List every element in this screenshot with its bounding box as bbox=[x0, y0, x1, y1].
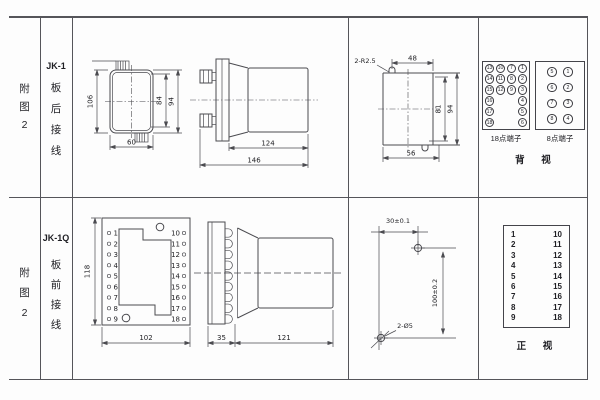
front-panel-outline: 123456789 101112131415161718 bbox=[102, 218, 190, 325]
terminal-circle-16: 16 bbox=[485, 96, 495, 106]
terminal-hole-15 bbox=[182, 285, 185, 288]
terminal-hole-11 bbox=[182, 242, 185, 245]
front-view-label: 正 视 bbox=[492, 338, 577, 352]
terminal-bump-3 bbox=[225, 250, 232, 258]
wiring-char: 接 bbox=[51, 300, 62, 311]
dim-56: 56 bbox=[407, 150, 416, 158]
terminal-num-13: 13 bbox=[171, 262, 180, 270]
terminal-circle-14: 14 bbox=[485, 74, 495, 84]
wiring-label-bottom: 板 前 接 线 bbox=[40, 260, 72, 331]
drawing-sheet: 附 图 2 JK-1 板 后 接 线 附 图 2 JK-1Q 板 前 接 线 bbox=[0, 0, 600, 400]
dim-106: 106 bbox=[87, 94, 95, 108]
terminal-circle-6: 6 bbox=[547, 83, 557, 93]
terminal-hole-13 bbox=[182, 264, 185, 267]
terminal-circle-9: 9 bbox=[507, 85, 517, 95]
front-terminals-right-column: 101112131415161718 bbox=[553, 231, 562, 322]
terminal-circle-4: 4 bbox=[563, 114, 573, 124]
figure-char: 附 bbox=[19, 268, 30, 279]
figure-char: 附 bbox=[19, 84, 30, 95]
terminal-bumps bbox=[225, 229, 232, 323]
model-label-jk1q: JK-1Q bbox=[40, 233, 72, 243]
terminal-number-14: 14 bbox=[553, 273, 562, 281]
label-18pt: 18点端子 bbox=[477, 133, 535, 144]
figure-char: 2 bbox=[22, 120, 28, 131]
dim-118: 118 bbox=[84, 265, 92, 278]
terminal-bump-9 bbox=[225, 315, 232, 323]
terminal-number-10: 10 bbox=[553, 231, 562, 239]
wiring-char: 线 bbox=[51, 146, 62, 157]
terminal-circle-3: 3 bbox=[518, 85, 528, 95]
terminal-hole-12 bbox=[182, 253, 185, 256]
terminal-number-13: 13 bbox=[553, 262, 562, 270]
terminal-circle-5: 5 bbox=[518, 107, 528, 117]
terminal-number-15: 15 bbox=[553, 283, 562, 291]
side-view-q-outline bbox=[194, 222, 342, 324]
terminal-hole-18 bbox=[182, 317, 185, 320]
terminal-bump-8 bbox=[225, 304, 232, 312]
dim-100: 100±0.2 bbox=[431, 279, 439, 307]
side-view-outline bbox=[190, 59, 318, 141]
terminal-hole-8 bbox=[107, 307, 110, 310]
terminal-number-16: 16 bbox=[553, 293, 562, 301]
terminal-hole-6 bbox=[107, 285, 110, 288]
figure-label-top: 附 图 2 bbox=[9, 84, 40, 131]
front-panel-terminals-right: 101112131415161718 bbox=[171, 230, 186, 324]
terminal-circle-10: 10 bbox=[496, 64, 506, 74]
terminal-num-3: 3 bbox=[114, 251, 118, 259]
terminal-block-18pt: 131071141182151293164175186 bbox=[482, 61, 530, 130]
terminal-number-8: 8 bbox=[511, 304, 515, 312]
terminal-circle-2: 2 bbox=[563, 83, 573, 93]
terminal-circle-4: 4 bbox=[518, 96, 528, 106]
figure-char: 图 bbox=[19, 102, 30, 113]
terminal-number-1: 1 bbox=[511, 231, 515, 239]
jk1-rear-and-side-view-drawing: 106 60 84 94 124 bbox=[72, 16, 348, 197]
dim-81: 81 bbox=[435, 105, 443, 114]
terminal-num-15: 15 bbox=[171, 283, 180, 291]
dim-30: 30±0.1 bbox=[386, 217, 410, 225]
dim-146: 146 bbox=[247, 157, 261, 165]
wiring-char: 前 bbox=[51, 280, 62, 291]
terminal-circle-3: 3 bbox=[563, 99, 573, 109]
terminal-hole-7 bbox=[107, 296, 110, 299]
terminal-num-17: 17 bbox=[171, 305, 180, 313]
terminal-bump-7 bbox=[225, 293, 232, 301]
terminal-circle-15: 15 bbox=[485, 85, 495, 95]
terminal-num-4: 4 bbox=[114, 262, 119, 270]
grid-line-right bbox=[587, 16, 588, 380]
terminal-circle-1: 1 bbox=[563, 67, 573, 77]
terminal-bump-4 bbox=[225, 261, 232, 269]
terminal-number-11: 11 bbox=[553, 241, 562, 249]
terminal-num-5: 5 bbox=[114, 273, 118, 281]
figure-char: 图 bbox=[19, 288, 30, 299]
terminal-circle-8: 8 bbox=[507, 74, 517, 84]
terminal-circle-2: 2 bbox=[518, 74, 528, 84]
terminal-hole-9 bbox=[107, 317, 110, 320]
terminal-circle-1: 1 bbox=[518, 64, 528, 74]
dim-102: 102 bbox=[139, 334, 152, 342]
figure-label-bottom: 附 图 2 bbox=[9, 268, 40, 319]
terminal-number-17: 17 bbox=[553, 304, 562, 312]
terminal-number-6: 6 bbox=[511, 283, 515, 291]
terminal-num-11: 11 bbox=[171, 240, 180, 248]
terminal-block-front-view: 123456789 101112131415161718 bbox=[503, 225, 570, 328]
mounting-hole-top bbox=[156, 223, 164, 231]
front-terminals-left-column: 123456789 bbox=[511, 231, 515, 322]
back-view-label: 背 视 bbox=[493, 152, 573, 166]
wiring-char: 线 bbox=[51, 320, 62, 331]
wiring-char: 板 bbox=[51, 260, 62, 271]
terminal-num-12: 12 bbox=[171, 251, 180, 259]
terminal-num-10: 10 bbox=[171, 230, 180, 238]
terminal-bump-1 bbox=[225, 229, 232, 237]
label-2-dia5: 2-Ø5 bbox=[397, 322, 413, 330]
terminal-circle-17: 17 bbox=[485, 107, 495, 117]
terminal-number-18: 18 bbox=[553, 314, 562, 322]
terminal-number-4: 4 bbox=[511, 262, 515, 270]
terminal-num-16: 16 bbox=[171, 294, 180, 302]
terminal-num-18: 18 bbox=[171, 316, 180, 324]
jk1q-front-and-side-view-drawing: 123456789 101112131415161718 118 102 35 … bbox=[72, 197, 348, 380]
terminal-circle-6: 6 bbox=[518, 118, 528, 128]
terminal-bump-6 bbox=[225, 283, 232, 291]
grid-line-col4 bbox=[478, 16, 479, 380]
terminal-bump-2 bbox=[225, 240, 232, 248]
figure-char: 2 bbox=[22, 308, 28, 319]
label-8pt: 8点端子 bbox=[531, 133, 589, 144]
dim-60: 60 bbox=[127, 139, 136, 147]
dim-35: 35 bbox=[217, 334, 226, 342]
drill-hole-diagram: 30±0.1 100±0.2 2-Ø5 bbox=[348, 197, 478, 380]
mounting-hole-bottom bbox=[122, 314, 130, 322]
model-label-jk1: JK-1 bbox=[40, 61, 72, 71]
terminal-circle-8: 8 bbox=[547, 114, 557, 124]
note-2-r2-5: 2-R2.5 bbox=[354, 57, 375, 65]
front-panel-terminals-left: 123456789 bbox=[107, 230, 118, 324]
dim-48: 48 bbox=[408, 55, 417, 63]
terminal-number-5: 5 bbox=[511, 273, 515, 281]
wiring-label-top: 板 后 接 线 bbox=[40, 83, 72, 157]
wiring-char: 接 bbox=[51, 125, 62, 136]
terminal-circle-18: 18 bbox=[485, 118, 495, 128]
terminal-hole-5 bbox=[107, 274, 110, 277]
dim-94-cutout: 94 bbox=[447, 104, 455, 113]
terminal-num-6: 6 bbox=[114, 283, 119, 291]
terminal-hole-14 bbox=[182, 274, 185, 277]
terminal-num-2: 2 bbox=[114, 240, 118, 248]
terminal-circle-5: 5 bbox=[547, 67, 557, 77]
cutout-dimensions: 48 2-R2.5 56 81 94 bbox=[354, 55, 457, 163]
terminal-circle-12: 12 bbox=[496, 85, 506, 95]
terminal-circle-7: 7 bbox=[547, 99, 557, 109]
terminal-hole-17 bbox=[182, 307, 185, 310]
dim-124: 124 bbox=[261, 140, 275, 148]
terminal-hole-10 bbox=[182, 231, 185, 234]
terminal-hole-16 bbox=[182, 296, 185, 299]
terminal-num-14: 14 bbox=[171, 273, 180, 281]
jk1-panel-cutout-drawing: 48 2-R2.5 56 81 94 bbox=[348, 16, 478, 197]
terminal-circle-13: 13 bbox=[485, 64, 495, 74]
wiring-char: 板 bbox=[51, 83, 62, 94]
terminal-number-12: 12 bbox=[553, 252, 562, 260]
dim-121: 121 bbox=[277, 334, 290, 342]
terminal-hole-4 bbox=[107, 264, 110, 267]
side-view-q-dimensions: 35 121 bbox=[208, 310, 333, 347]
dim-94: 94 bbox=[168, 97, 176, 106]
terminal-number-3: 3 bbox=[511, 252, 515, 260]
rear-view-dimensions: 106 60 84 94 bbox=[87, 70, 183, 150]
terminal-num-8: 8 bbox=[114, 305, 118, 313]
terminal-hole-2 bbox=[107, 242, 110, 245]
terminal-num-1: 1 bbox=[114, 230, 118, 238]
dim-84: 84 bbox=[156, 96, 164, 105]
terminal-grid-8pt: 51627384 bbox=[536, 62, 584, 129]
terminal-hole-1 bbox=[107, 231, 110, 234]
terminal-number-9: 9 bbox=[511, 314, 515, 322]
terminal-num-9: 9 bbox=[114, 316, 118, 324]
terminal-block-8pt: 51627384 bbox=[535, 61, 585, 130]
terminal-number-2: 2 bbox=[511, 241, 515, 249]
wiring-char: 后 bbox=[51, 104, 62, 115]
terminal-number-7: 7 bbox=[511, 293, 515, 301]
rear-view-outline bbox=[92, 61, 158, 142]
terminal-circle-11: 11 bbox=[496, 74, 506, 84]
terminal-grid-18pt: 131071141182151293164175186 bbox=[483, 62, 529, 129]
terminal-num-7: 7 bbox=[114, 294, 118, 302]
terminal-circle-7: 7 bbox=[507, 64, 517, 74]
terminal-hole-3 bbox=[107, 253, 110, 256]
